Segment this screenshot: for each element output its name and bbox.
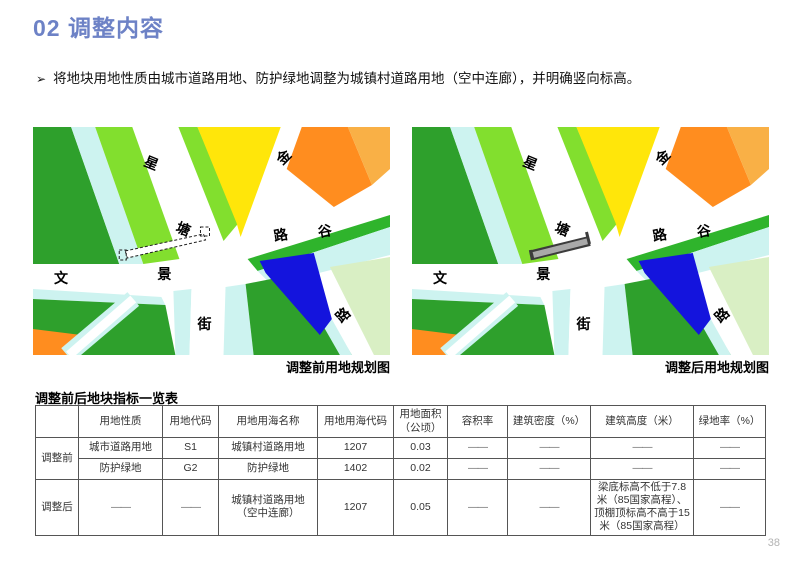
map-road-label: 景 — [157, 266, 171, 282]
map-before: 星塘金路谷文景街路 — [33, 127, 390, 355]
cell: —— — [163, 480, 219, 536]
cell: 0.05 — [394, 480, 448, 536]
cell: —— — [694, 438, 766, 459]
cell: 防护绿地 — [79, 459, 163, 480]
row-group-label: 调整后 — [36, 480, 79, 536]
cell: —— — [79, 480, 163, 536]
cell: 城镇村道路用地 — [219, 438, 318, 459]
map-caption-after: 调整后用地规划图 — [412, 357, 769, 376]
cell: 城镇村道路用地（空中连廊） — [219, 480, 318, 536]
cell: —— — [694, 459, 766, 480]
table-header-row: 用地性质 用地代码 用地用海名称 用地用海代码 用地面积（公顷） 容积率 建筑密… — [36, 406, 766, 438]
cell: G2 — [163, 459, 219, 480]
cell: 梁底标高不低于7.8米（85国家高程）、顶棚顶标高不高于15米（85国家高程） — [591, 480, 694, 536]
arrow-bullet-icon: ➢ — [36, 70, 46, 88]
cell: 0.03 — [394, 438, 448, 459]
cell: 1402 — [318, 459, 394, 480]
cell: 城市道路用地 — [79, 438, 163, 459]
map-road-label: 景 — [536, 266, 550, 282]
col-header: 用地用海名称 — [219, 406, 318, 438]
cell: —— — [591, 438, 694, 459]
cell: —— — [508, 480, 591, 536]
map-region-cyan — [173, 289, 191, 355]
cell: —— — [591, 459, 694, 480]
cell: —— — [508, 459, 591, 480]
corridor-foot — [530, 250, 532, 260]
table-row: 防护绿地 G2 防护绿地 1402 0.02 —— —— —— —— — [36, 459, 766, 480]
map-road-label: 街 — [196, 316, 211, 332]
table-row: 调整前 城市道路用地 S1 城镇村道路用地 1207 0.03 —— —— ——… — [36, 438, 766, 459]
cell: 防护绿地 — [219, 459, 318, 480]
map-road-label: 文 — [433, 270, 448, 286]
col-header: 用地面积（公顷） — [394, 406, 448, 438]
col-header: 用地用海代码 — [318, 406, 394, 438]
cell: 1207 — [318, 438, 394, 459]
page-number: 38 — [768, 537, 780, 549]
cell: 1207 — [318, 480, 394, 536]
row-group-label: 调整前 — [36, 438, 79, 480]
indicators-table: 用地性质 用地代码 用地用海名称 用地用海代码 用地面积（公顷） 容积率 建筑密… — [35, 405, 766, 536]
col-header — [36, 406, 79, 438]
map-after: 星塘金路谷文景街路 — [412, 127, 769, 355]
cell: —— — [508, 438, 591, 459]
page-title: 02 调整内容 — [33, 9, 164, 43]
land-use-map: 星塘金路谷文景街路 — [412, 127, 769, 355]
cell: —— — [448, 459, 508, 480]
cell: 0.02 — [394, 459, 448, 480]
col-header: 用地性质 — [79, 406, 163, 438]
bullet-item: ➢ 将地块用地性质由城市道路用地、防护绿地调整为城镇村道路用地（空中连廊），并明… — [36, 70, 776, 88]
col-header: 建筑高度（米） — [591, 406, 694, 438]
cell: —— — [448, 438, 508, 459]
table-row: 调整后 —— —— 城镇村道路用地（空中连廊） 1207 0.05 —— —— … — [36, 480, 766, 536]
col-header: 容积率 — [448, 406, 508, 438]
cell: —— — [448, 480, 508, 536]
col-header: 建筑密度（%） — [508, 406, 591, 438]
col-header: 用地代码 — [163, 406, 219, 438]
bullet-text: 将地块用地性质由城市道路用地、防护绿地调整为城镇村道路用地（空中连廊），并明确竖… — [53, 70, 640, 88]
map-road-label: 文 — [54, 270, 69, 286]
col-header: 绿地率（%） — [694, 406, 766, 438]
land-use-map: 星塘金路谷文景街路 — [33, 127, 390, 355]
cell: —— — [694, 480, 766, 536]
map-road-label: 街 — [575, 316, 590, 332]
cell: S1 — [163, 438, 219, 459]
slide: 02 调整内容 ➢ 将地块用地性质由城市道路用地、防护绿地调整为城镇村道路用地（… — [0, 0, 800, 566]
map-caption-before: 调整前用地规划图 — [33, 357, 390, 376]
map-region-cyan — [552, 289, 570, 355]
